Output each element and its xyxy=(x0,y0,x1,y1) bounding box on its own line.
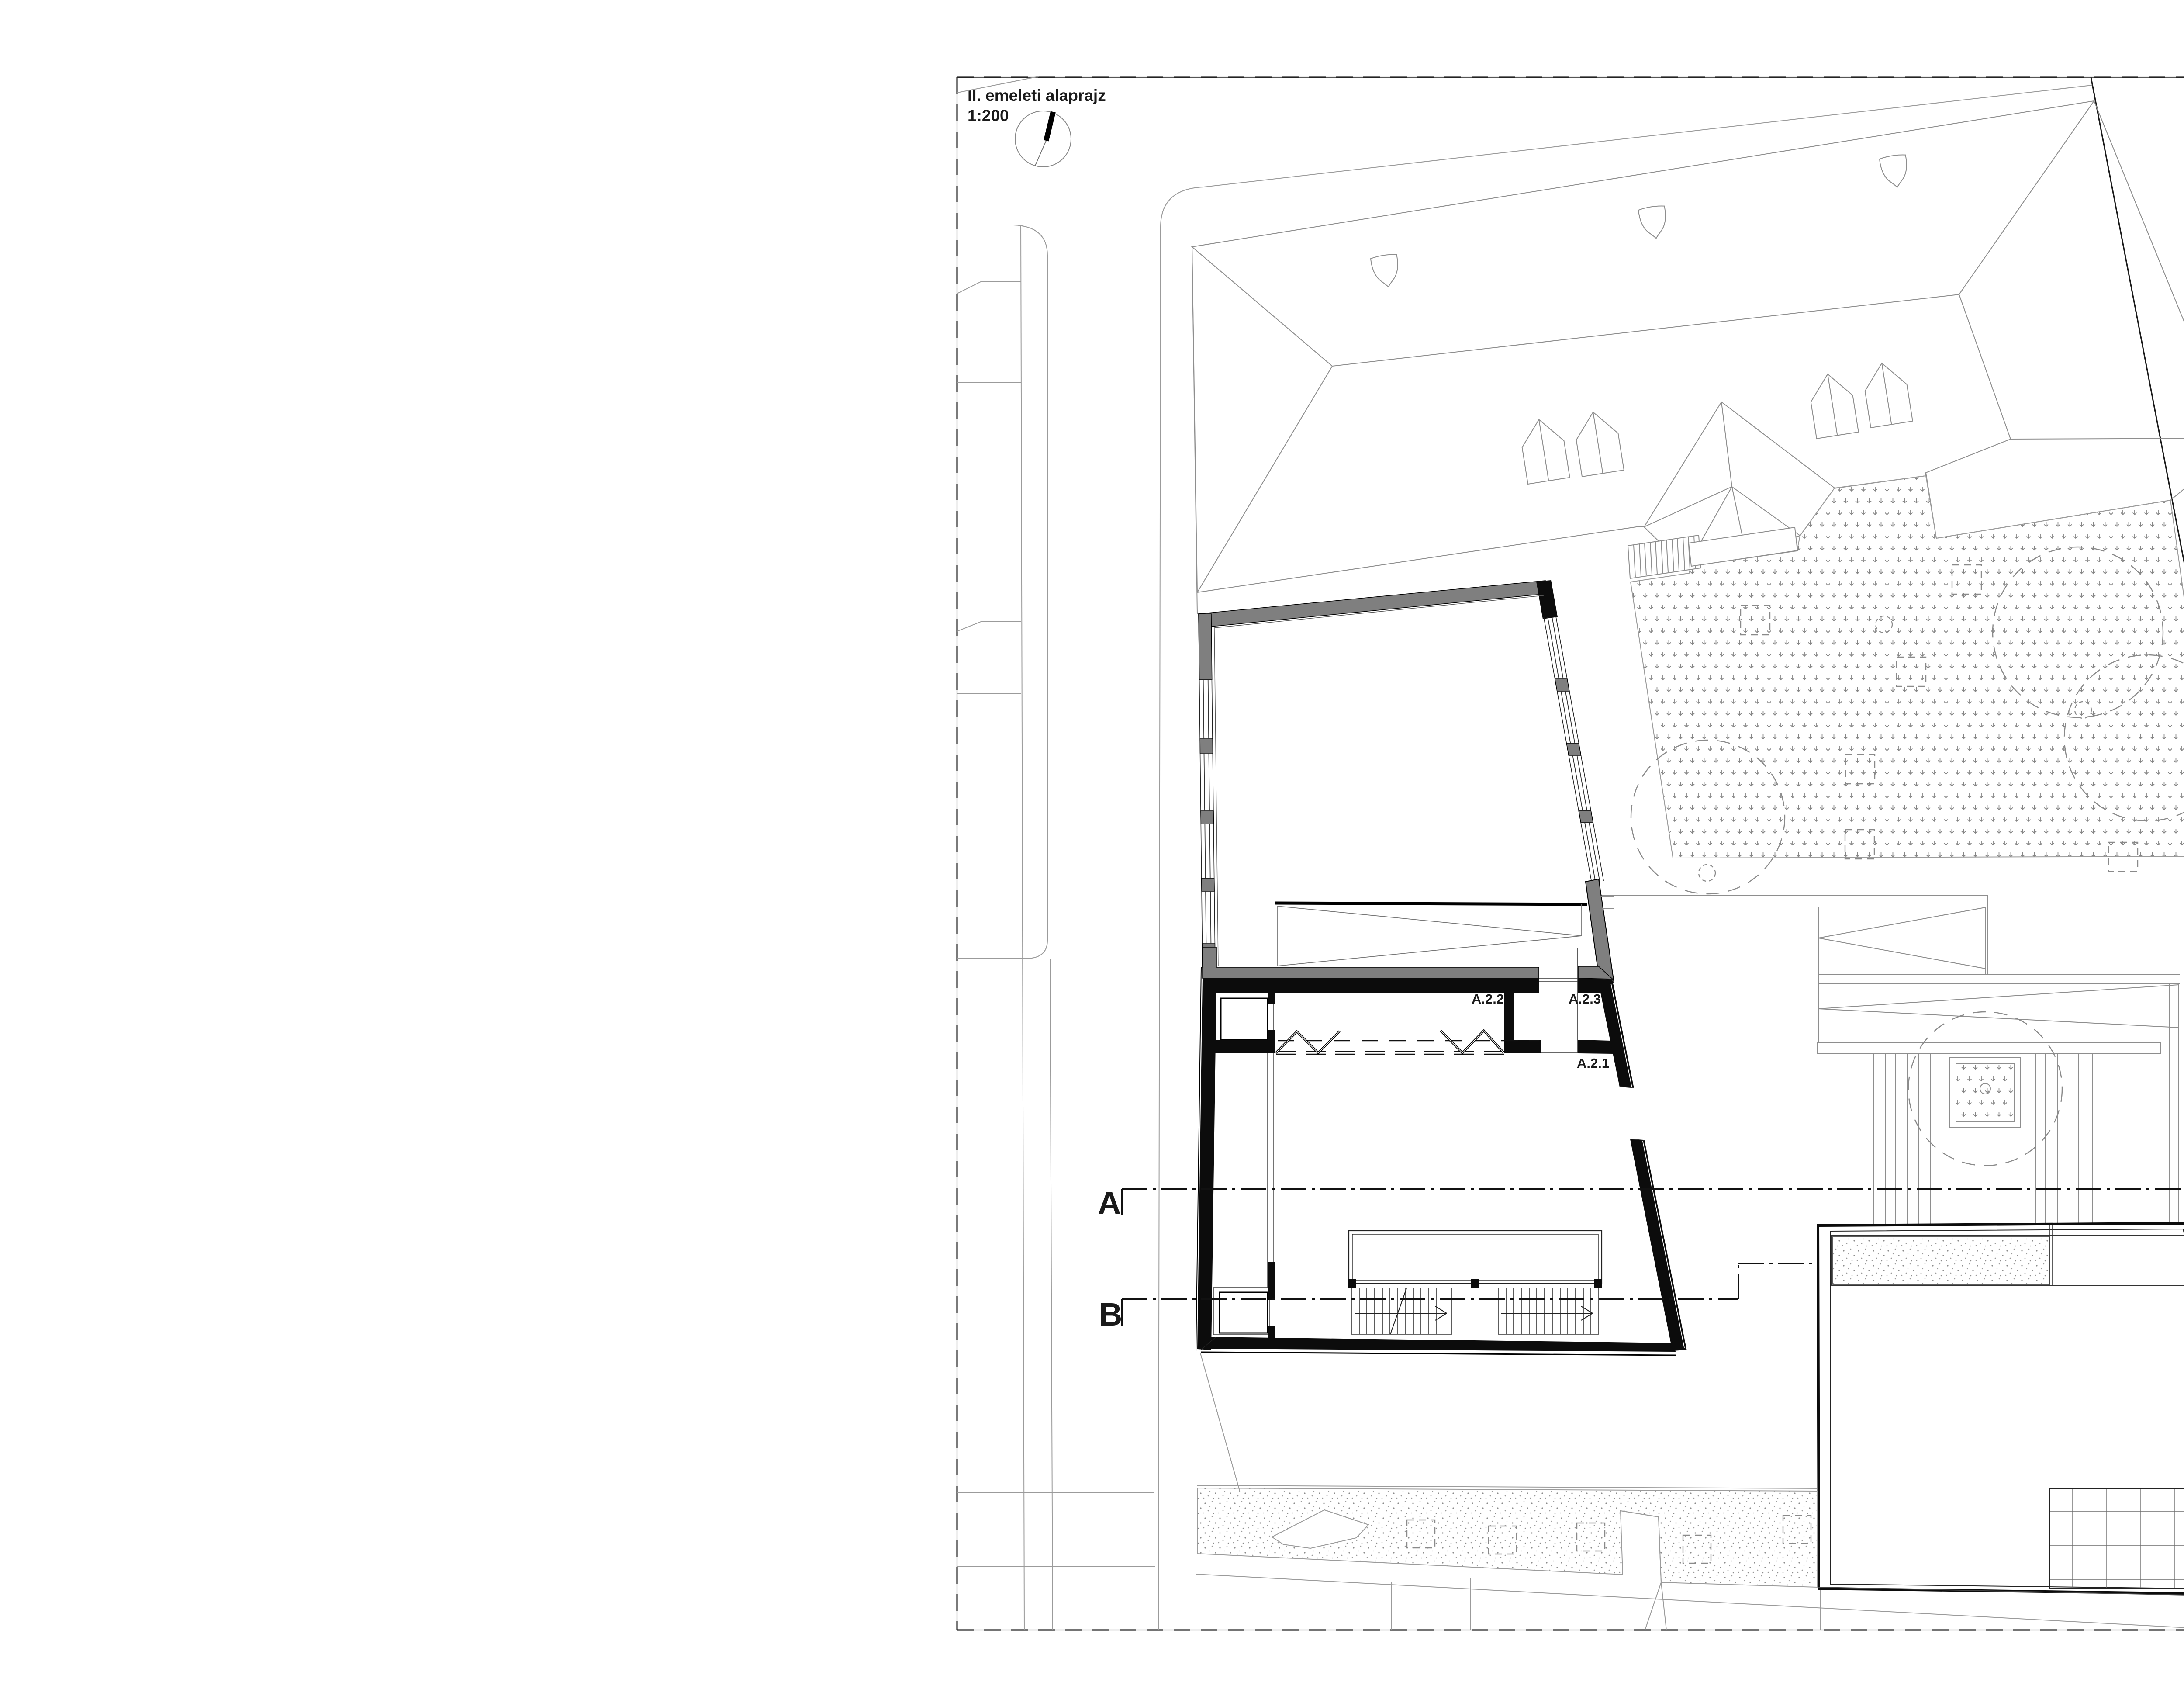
svg-text:A.2.1: A.2.1 xyxy=(1577,1056,1609,1071)
svg-text:1:200: 1:200 xyxy=(968,107,1009,125)
svg-text:II. emeleti alaprajz: II. emeleti alaprajz xyxy=(968,87,1106,104)
svg-text:A.2.2: A.2.2 xyxy=(1472,991,1504,1007)
svg-text:B: B xyxy=(1099,1296,1122,1333)
svg-text:A: A xyxy=(1098,1185,1121,1221)
svg-text:A.2.3: A.2.3 xyxy=(1569,991,1601,1007)
